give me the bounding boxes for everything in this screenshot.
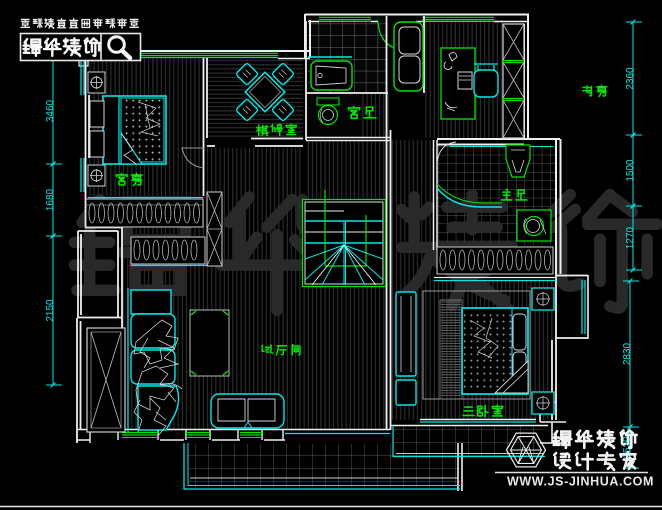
svg-text:2360: 2360: [625, 67, 636, 90]
svg-text:2150: 2150: [45, 299, 56, 322]
svg-text:1500: 1500: [625, 159, 636, 182]
svg-text:WWW.JS-JINHUA.COM: WWW.JS-JINHUA.COM: [507, 475, 654, 489]
svg-text:1680: 1680: [45, 188, 56, 211]
svg-text:1270: 1270: [625, 226, 636, 249]
svg-text:3460: 3460: [45, 99, 56, 122]
svg-text:2830: 2830: [622, 342, 633, 365]
